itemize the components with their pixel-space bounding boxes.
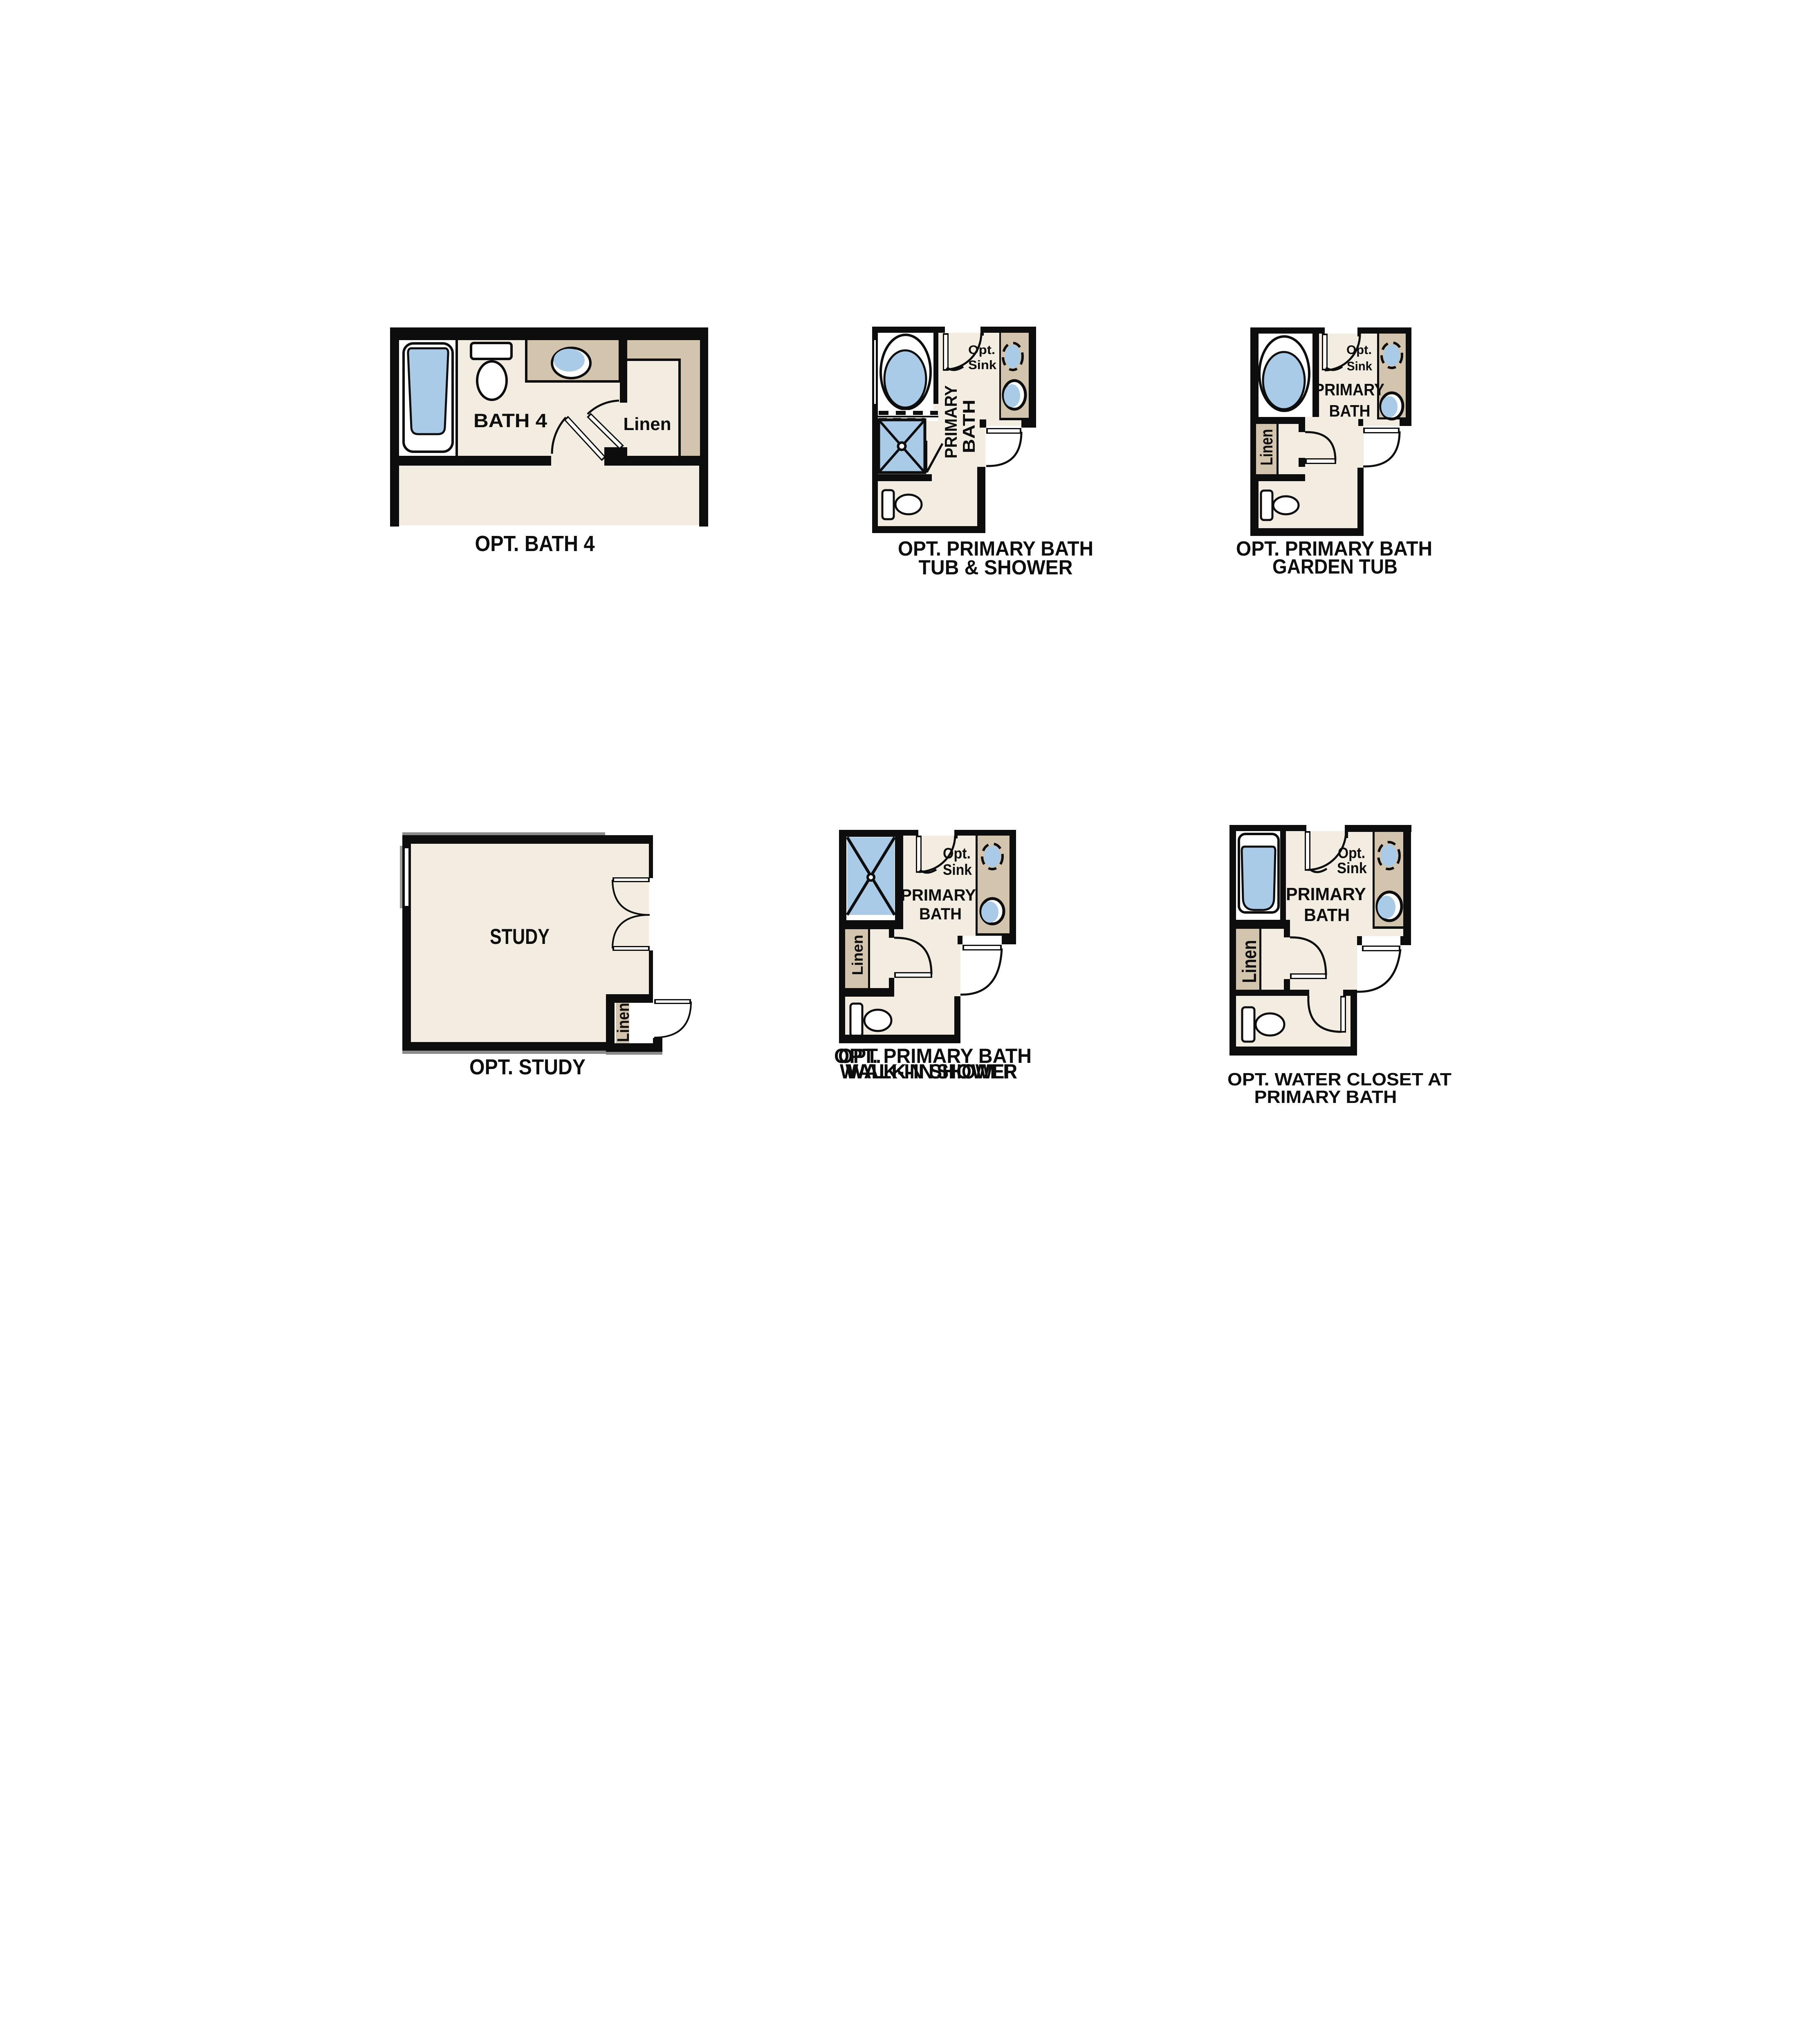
svg-text:BATH: BATH <box>1304 905 1350 925</box>
svg-text:Opt.: Opt. <box>1346 343 1372 357</box>
svg-text:PRIMARY BATH: PRIMARY BATH <box>1254 1087 1397 1107</box>
svg-text:BATH: BATH <box>959 400 978 453</box>
svg-text:Sink: Sink <box>943 861 972 878</box>
svg-text:Linen: Linen <box>1239 940 1261 983</box>
svg-text:OPT. STUDY: OPT. STUDY <box>469 1055 586 1079</box>
svg-text:BATH 4: BATH 4 <box>473 410 547 431</box>
svg-text:Opt.: Opt. <box>968 343 995 357</box>
svg-text:Linen: Linen <box>849 935 866 975</box>
svg-text:OPT. WATER CLOSET AT: OPT. WATER CLOSET AT <box>1227 1069 1452 1089</box>
svg-text:Sink: Sink <box>1337 860 1367 876</box>
svg-text:PRIMARY: PRIMARY <box>901 886 976 904</box>
svg-text:Opt.: Opt. <box>943 845 971 862</box>
svg-text:OPT. BATH 4: OPT. BATH 4 <box>475 531 595 556</box>
svg-text:SHOWER: SHOWER <box>937 1060 1017 1083</box>
svg-text:Linen: Linen <box>614 1003 633 1042</box>
svg-text:Sink: Sink <box>968 358 997 372</box>
svg-text:Sink: Sink <box>1347 359 1373 373</box>
svg-text:Opt.: Opt. <box>1338 845 1365 861</box>
svg-text:PRIMARY: PRIMARY <box>1286 884 1366 904</box>
svg-text:TUB & SHOWER: TUB & SHOWER <box>919 556 1073 579</box>
svg-text:Linen: Linen <box>624 414 671 434</box>
svg-text:PRIMARY: PRIMARY <box>941 385 960 459</box>
svg-text:Linen: Linen <box>1257 429 1276 466</box>
svg-text:GARDEN TUB: GARDEN TUB <box>1272 555 1398 578</box>
svg-text:BATH: BATH <box>1329 401 1371 420</box>
svg-text:STUDY: STUDY <box>490 925 550 949</box>
svg-text:BATH: BATH <box>919 905 962 923</box>
svg-text:WALK-IN: WALK-IN <box>846 1060 934 1083</box>
svg-text:PRIMARY: PRIMARY <box>1314 380 1384 399</box>
